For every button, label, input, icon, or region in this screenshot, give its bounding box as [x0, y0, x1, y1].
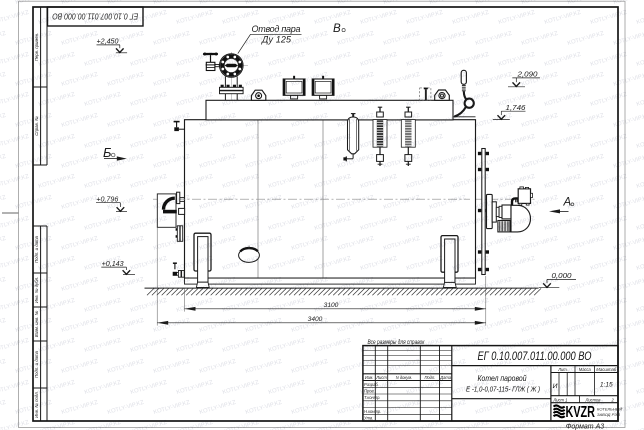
svg-text:Н.контр.: Н.контр.: [364, 409, 381, 414]
svg-text:В: В: [333, 23, 341, 35]
svg-text:Подп.: Подп.: [424, 375, 435, 380]
svg-text:ЕГ 0.10.007.011.00.000 ВО: ЕГ 0.10.007.011.00.000 ВО: [478, 349, 592, 363]
svg-text:Лист: Лист: [375, 375, 387, 380]
svg-text:Утв.: Утв.: [364, 415, 373, 420]
svg-text:N докум.: N докум.: [396, 375, 413, 380]
svg-text:Б: Б: [103, 145, 112, 160]
svg-text:Изм.: Изм.: [365, 375, 374, 380]
